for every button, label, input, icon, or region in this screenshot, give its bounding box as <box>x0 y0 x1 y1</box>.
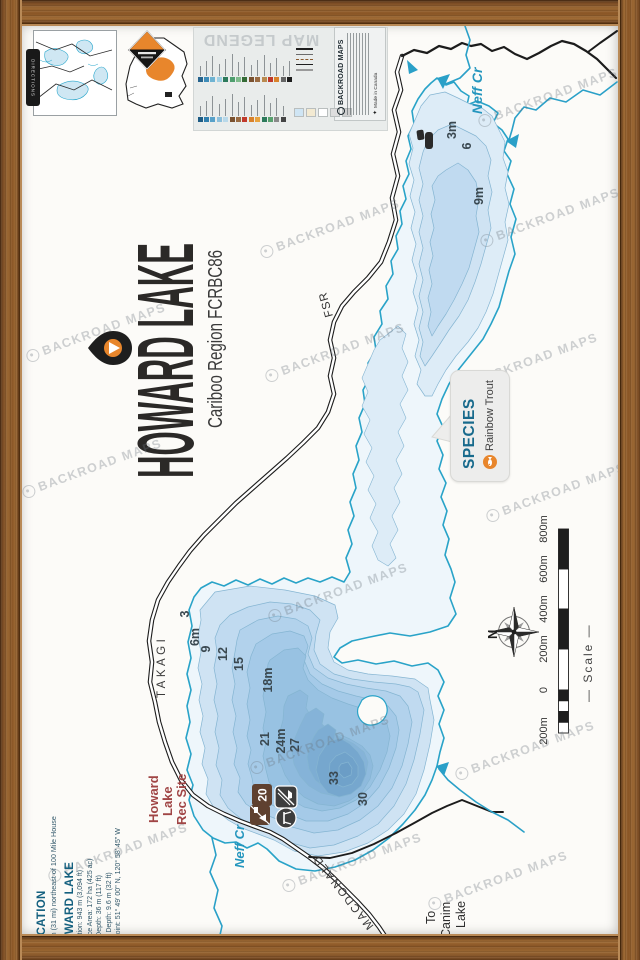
road-label-takagi: TAKAGI <box>156 636 168 698</box>
legend-swatch <box>255 117 260 122</box>
species-value: Rainbow Trout <box>484 380 496 451</box>
legend-area-sample <box>306 108 316 117</box>
scale-bar <box>559 529 569 733</box>
legend-swatch <box>262 117 267 122</box>
legend-swatch <box>223 77 228 82</box>
brand-heading: BACKROAD MAPS <box>337 29 345 115</box>
legend-swatch <box>230 117 235 122</box>
legend-swatch <box>262 77 267 82</box>
legend-swatch <box>242 77 247 82</box>
lake-stat-line: Elevation: 943 m (3,094 ft) <box>76 788 85 952</box>
brand-name: BACKROAD MAPS <box>338 39 345 105</box>
island <box>358 696 388 725</box>
scale-tick-label: 400m <box>538 595 550 623</box>
fine-print <box>347 33 371 115</box>
legend-swatch <box>249 117 254 122</box>
legend-swatch <box>217 117 222 122</box>
legend-swatch <box>236 77 241 82</box>
legend-line-sample <box>296 59 313 60</box>
campsite-count-badge: 20 <box>252 784 272 806</box>
scale-tick-label: 800m <box>538 515 550 543</box>
legend-line-sample <box>296 48 313 50</box>
depth-label: 18m <box>261 667 275 692</box>
legend-swatch <box>249 77 254 82</box>
map-title: HOWARD LAKE <box>121 243 210 478</box>
area-inset-graphics <box>34 40 112 100</box>
legend-swatch <box>274 77 279 82</box>
legend-swatch <box>217 77 222 82</box>
lake-stat-line: Max Depth: 36 m (117 ft) <box>95 788 104 952</box>
depth-label: 9 <box>199 645 213 652</box>
legend-swatch <box>281 77 286 82</box>
road-label-fsr: FSR <box>317 290 336 318</box>
legend-line-samples <box>296 48 313 75</box>
depth-label: 9m <box>472 187 486 205</box>
depth-label: 27 <box>288 738 302 752</box>
legend-area-sample <box>294 108 304 117</box>
scale-tick-label: 0 <box>538 687 550 693</box>
directions-tab-label: DIRECTIONS <box>31 59 36 97</box>
framed-lake-map: 20 <box>0 0 640 960</box>
boat-launch-icon <box>275 786 297 808</box>
wood-frame-left <box>0 0 22 960</box>
depth-label: 12 <box>216 647 230 661</box>
species-content: SPECIES Rainbow Trout <box>451 372 507 477</box>
location-heading: LOCATION <box>36 788 48 952</box>
directions-tab: DIRECTIONS <box>26 49 40 106</box>
legend-swatch <box>198 77 203 82</box>
map-subtitle: Cariboo Region FCRBC86 <box>205 250 227 428</box>
depth-label: 6m <box>188 628 202 646</box>
legend-title: MAP LEGEND <box>198 28 324 48</box>
depth-label: 24m <box>274 728 288 753</box>
destination-label: Lake <box>454 901 468 928</box>
pin-icon <box>337 107 345 115</box>
depth-label: 15 <box>232 657 246 671</box>
scale-caption: — Scale — <box>581 623 595 702</box>
legend-swatch <box>210 117 215 122</box>
legend-line-sample <box>296 54 313 55</box>
legend-swatch <box>204 77 209 82</box>
made-in-label: Made in Canada <box>374 73 379 108</box>
campsite-count: 20 <box>256 788 270 802</box>
southeast-inlet-creek <box>439 769 524 832</box>
location-text: 50 km (31 mi) northeast of 100 Mile Hous… <box>49 788 58 952</box>
creek-label-neff-north: Neff Cr <box>469 66 485 114</box>
depth-label: 3 <box>178 610 192 617</box>
picnic-icon <box>276 808 296 828</box>
lake-stat-line: Mean Depth: 9.6 m (32 ft) <box>105 788 114 952</box>
compass-north-label: N <box>485 630 500 639</box>
depth-label: 6 <box>460 142 474 149</box>
legend-swatch <box>242 117 247 122</box>
legend-swatch <box>255 77 260 82</box>
legend-swatch <box>223 117 228 122</box>
east-inlet-creek <box>509 82 617 140</box>
depth-label: 3m <box>445 121 459 139</box>
location-info-block: LOCATION 50 km (31 mi) northeast of 100 … <box>36 788 114 952</box>
legend-swatch <box>230 77 235 82</box>
scale-tick-label: 200m <box>538 717 550 745</box>
legend-swatch <box>210 77 215 82</box>
legend-swatch <box>281 117 286 122</box>
creek-label-neff-south: Neff Cr <box>232 824 247 868</box>
legend-swatch <box>268 117 273 122</box>
legend-swatch <box>204 117 209 122</box>
inlet-arrow <box>407 60 418 74</box>
legend-area-sample <box>318 108 328 117</box>
legend-swatch <box>236 117 241 122</box>
legend-swatch <box>268 77 273 82</box>
lake-stat-line: Surface Area: 172 ha (425 ac) <box>86 788 95 952</box>
scale-tick-label: 200m <box>538 635 550 663</box>
legend-swatch <box>198 117 203 122</box>
legend-item <box>280 86 286 122</box>
lake-stats-heading: HOWARD LAKE <box>64 788 76 952</box>
wood-frame-right <box>618 0 640 960</box>
species-heading: SPECIES <box>461 380 479 469</box>
destination-label: To <box>424 911 438 924</box>
legend-line-sample <box>296 64 313 65</box>
legend-swatch <box>274 117 279 122</box>
fish-icon <box>483 455 497 469</box>
legend-item <box>286 46 292 82</box>
rec-site-name: Howard <box>146 775 161 823</box>
depth-label: 33 <box>327 771 341 785</box>
campground-icon <box>250 805 270 825</box>
lake-stat-line: Waypoint: 51° 49' 00" N, 120° 58' 45" W <box>114 788 123 952</box>
wood-frame-bottom <box>0 934 640 960</box>
brand-info-content: BACKROAD MAPS ✦ Made in Canada <box>337 29 381 115</box>
rec-site-name: Lake <box>160 786 175 816</box>
scale-tick-label: 600m <box>538 555 550 583</box>
inlet-arrow <box>506 134 519 148</box>
lake-stats: Elevation: 943 m (3,094 ft)Surface Area:… <box>76 788 123 952</box>
wood-frame-top <box>0 0 640 26</box>
depth-label: 21 <box>258 732 272 746</box>
legend-swatch <box>287 77 292 82</box>
legend-line-sample <box>296 69 313 71</box>
depth-label: 30 <box>356 792 370 806</box>
rec-site-name: Rec Site <box>174 774 189 825</box>
maple-leaf-icon: ✦ <box>373 110 379 115</box>
north-road <box>402 41 616 78</box>
made-in-canada: ✦ Made in Canada <box>373 29 379 115</box>
destination-label: Canim <box>439 902 453 938</box>
